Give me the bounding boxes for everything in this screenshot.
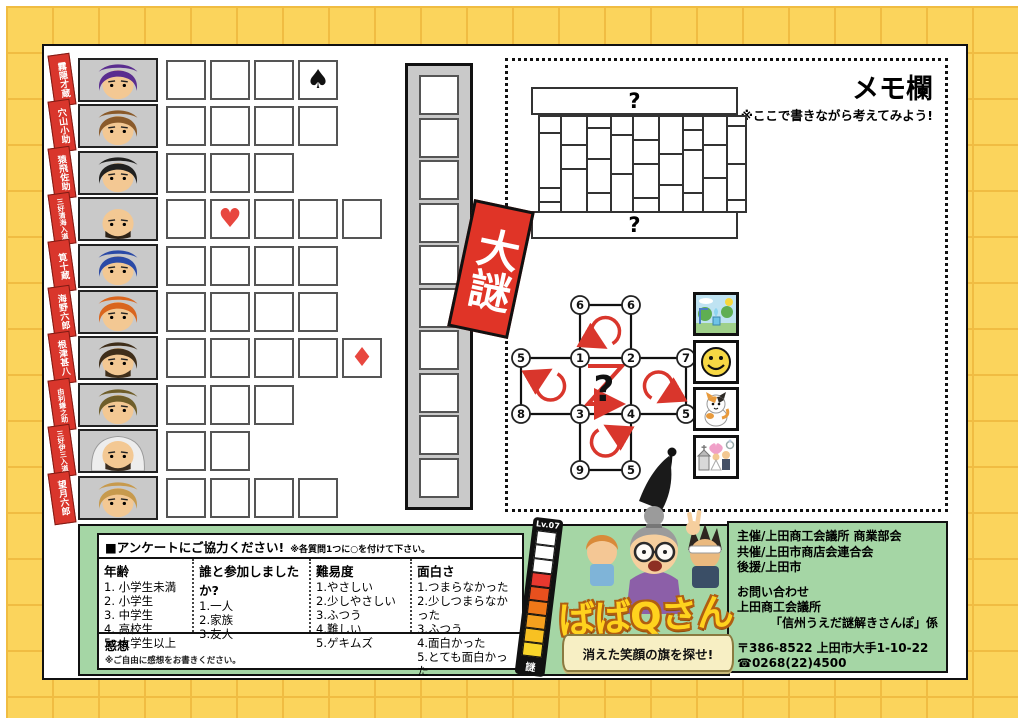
survey-option[interactable]: 3.ふつう	[316, 608, 405, 622]
final-answer-box[interactable]	[419, 458, 459, 498]
brick	[610, 173, 634, 213]
answer-box[interactable]	[254, 106, 294, 146]
answer-box[interactable]	[254, 292, 294, 332]
answer-box[interactable]	[254, 338, 294, 378]
answer-box[interactable]	[210, 338, 250, 378]
character-name-tag: 望月六郎	[47, 470, 76, 525]
brick	[682, 192, 704, 213]
final-answer-box[interactable]	[419, 245, 459, 285]
survey-option[interactable]: 2.家族	[199, 613, 304, 627]
survey-header-note: ※各質問1つに○を付けて下さい。	[290, 545, 430, 555]
puzzle-node-number: 4	[627, 407, 635, 421]
character-name-tag: 穴山小助	[47, 99, 76, 154]
cat-picture-icon	[693, 387, 739, 431]
diamond-mark-icon: ♦	[350, 345, 373, 371]
survey-option[interactable]: 1.一人	[199, 599, 304, 613]
answer-box[interactable]	[166, 106, 206, 146]
answer-box[interactable]	[210, 292, 250, 332]
answer-box-row	[166, 106, 338, 146]
survey-column: 難易度1.やさしい2.少しやさしい3.ふつう4.難しい5.ゲキムズ	[309, 559, 410, 632]
answer-box[interactable]	[210, 153, 250, 193]
survey-column-title: 誰と参加しましたか?	[199, 561, 304, 599]
contact-line: お問い合わせ	[737, 585, 938, 601]
rotation-arrow-icon	[537, 374, 565, 400]
memo-note: ※ここで書きながら考えてみよう!	[741, 105, 933, 124]
rotation-arrow-icon	[645, 372, 673, 398]
answer-box[interactable]	[254, 60, 294, 100]
character-portrait	[78, 104, 158, 148]
park-picture-icon	[693, 292, 739, 336]
answer-box[interactable]	[254, 478, 294, 518]
answer-box[interactable]	[166, 385, 206, 425]
contact-line: ☎0268(22)4500	[737, 656, 938, 672]
brick-bottom-bar: ?	[531, 211, 738, 239]
brick-column	[704, 115, 728, 211]
final-answer-box[interactable]	[419, 75, 459, 115]
brick	[682, 149, 704, 194]
brick	[658, 153, 684, 186]
answer-box[interactable]	[210, 246, 250, 286]
brick	[538, 201, 562, 213]
survey-header-title: ■アンケートにご協力ください!	[105, 540, 284, 555]
final-answer-box[interactable]	[419, 415, 459, 455]
character-portrait	[78, 244, 158, 288]
answer-box[interactable]: ♦	[342, 338, 382, 378]
answer-box[interactable]	[254, 246, 294, 286]
brick	[682, 129, 704, 150]
memo-area[interactable]: メモ欄 ※ここで書きながら考えてみよう! ? ? ?665127834595	[505, 58, 948, 512]
survey-feedback[interactable]: 感想 ※ご自由に感想をお書きください。	[99, 632, 522, 668]
survey-column: 年齢1. 小学生未満2. 小学生3. 中学生4. 高校生5. 大学生以上	[99, 559, 192, 632]
brick	[702, 144, 728, 180]
answer-box-row	[166, 478, 338, 518]
answer-box[interactable]	[210, 385, 250, 425]
answer-box[interactable]	[166, 153, 206, 193]
answer-box[interactable]	[210, 431, 250, 471]
answer-box-row	[166, 385, 294, 425]
brick	[726, 125, 747, 165]
character-portrait	[78, 336, 158, 380]
final-answer-box[interactable]	[419, 373, 459, 413]
answer-box[interactable]	[298, 246, 338, 286]
brick	[702, 115, 728, 146]
brick-column	[684, 115, 704, 211]
brick	[702, 177, 728, 213]
answer-box[interactable]	[298, 292, 338, 332]
answer-box[interactable]: ♠	[298, 60, 338, 100]
event-logo: Lv.07 謎	[522, 508, 740, 680]
survey-column-title: 難易度	[316, 561, 405, 580]
brick	[560, 144, 588, 170]
answer-box[interactable]	[342, 199, 382, 239]
answer-box[interactable]	[166, 338, 206, 378]
brick-column	[660, 115, 684, 211]
answer-box[interactable]	[298, 199, 338, 239]
answer-box-row	[166, 153, 294, 193]
final-answer-box[interactable]	[419, 203, 459, 243]
answer-box[interactable]	[166, 246, 206, 286]
brick	[586, 158, 612, 194]
puzzle-node-number: 2	[627, 351, 635, 365]
memo-title: メモ欄	[852, 67, 933, 106]
logo-tagline: 消えた笑顔の旗を探せ!	[583, 644, 714, 663]
character-portrait	[78, 429, 158, 473]
brick	[632, 115, 660, 141]
brick-column	[588, 115, 612, 211]
answer-box-row: ♠	[166, 60, 338, 100]
character-name-tag: 根津甚八	[47, 331, 76, 386]
survey-option[interactable]: 1.つまらなかった	[417, 580, 517, 594]
puzzle-node-number: 3	[576, 407, 584, 421]
brick-column	[634, 115, 660, 211]
survey-columns: 年齢1. 小学生未満2. 小学生3. 中学生4. 高校生5. 大学生以上誰と参加…	[99, 559, 522, 632]
contact-box: 主催/上田商工会議所 商業部会共催/上田市商店会連合会後援/上田市お問い合わせ上…	[727, 521, 948, 673]
answer-box[interactable]	[298, 478, 338, 518]
survey-column: 面白さ1.つまらなかった2.少しつまらなかった3.ふつう4.面白かった5.とても…	[410, 559, 522, 632]
character-portrait	[78, 476, 158, 520]
brick	[586, 127, 612, 161]
survey-option[interactable]: 1.やさしい	[316, 580, 405, 594]
feedback-title: 感想	[105, 639, 129, 653]
page-background: 霧隠才蔵♠穴山小助猿飛佐助三好清海入道♥筧十蔵海野六郎根津甚八♦由利鎌之助三好伊…	[0, 0, 1024, 724]
brick	[610, 134, 634, 174]
survey-option[interactable]: 2. 小学生	[104, 594, 187, 608]
final-answer-box[interactable]	[419, 118, 459, 158]
answer-box[interactable]	[210, 478, 250, 518]
riddle-worksheet: 霧隠才蔵♠穴山小助猿飛佐助三好清海入道♥筧十蔵海野六郎根津甚八♦由利鎌之助三好伊…	[42, 44, 968, 680]
contact-line: 〒386-8522 上田市大手1-10-22	[737, 641, 938, 657]
gauge-segment	[522, 641, 544, 657]
puzzle-node-number: 6	[576, 298, 584, 312]
character-name-tag: 三好清海入道	[47, 192, 76, 247]
character-portrait	[78, 383, 158, 427]
contact-line: 主催/上田商工会議所 商業部会	[737, 529, 938, 545]
puzzle-node-number: 9	[576, 463, 584, 477]
answer-box[interactable]	[210, 106, 250, 146]
brick	[726, 163, 747, 201]
character-name-tag: 三好伊三入道	[47, 424, 76, 479]
answer-box[interactable]	[298, 106, 338, 146]
character-portrait	[78, 290, 158, 334]
answer-box-row	[166, 292, 338, 332]
puzzle-node-number: 8	[517, 407, 525, 421]
brick-puzzle: ? ?	[531, 87, 738, 239]
final-answer-box[interactable]	[419, 160, 459, 200]
puzzle-node-number: 5	[517, 351, 525, 365]
brick	[658, 115, 684, 155]
answer-box[interactable]	[254, 153, 294, 193]
answer-box[interactable]	[166, 292, 206, 332]
survey-column-title: 年齢	[104, 561, 187, 580]
brick	[586, 192, 612, 213]
survey-option[interactable]: 3. 中学生	[104, 608, 187, 622]
puzzle-node-number: 6	[627, 298, 635, 312]
brick	[610, 115, 634, 136]
brick	[632, 139, 660, 165]
survey-column: 誰と参加しましたか?1.一人2.家族3.友人	[192, 559, 309, 632]
brick-wall	[540, 115, 729, 211]
final-answer-box[interactable]	[419, 330, 459, 370]
answer-box[interactable]	[254, 385, 294, 425]
logo-banner: 消えた笑顔の旗を探せ!	[562, 634, 734, 672]
answer-box-row: ♥	[166, 199, 382, 239]
spade-mark-icon: ♠	[306, 67, 329, 93]
contact-line: 後援/上田市	[737, 560, 938, 576]
brick	[726, 199, 747, 213]
answer-box[interactable]	[166, 431, 206, 471]
puzzle-node-number: 5	[682, 407, 690, 421]
heart-mark-icon: ♥	[218, 206, 241, 232]
survey-box: ■アンケートにご協力ください!※各質問1つに○を付けて下さい。 年齢1. 小学生…	[97, 533, 524, 670]
brick	[560, 115, 588, 146]
puzzle-node-number: 1	[576, 351, 584, 365]
smiley-picture-icon	[693, 340, 739, 384]
brick-column	[540, 115, 562, 211]
center-question-mark: ?	[594, 369, 615, 410]
gauge-riddle-label: 謎	[525, 658, 537, 674]
brick	[632, 197, 660, 213]
rotation-arrow-icon	[592, 430, 620, 456]
answer-box-row: ♦	[166, 338, 382, 378]
brick	[632, 163, 660, 199]
brick-column	[612, 115, 634, 211]
brick	[658, 184, 684, 213]
contact-line: 共催/上田市商店会連合会	[737, 545, 938, 561]
character-portrait	[78, 58, 158, 102]
rotation-arrow-icon	[592, 317, 620, 343]
puzzle-node-number: 7	[682, 351, 690, 365]
contact-line: 上田商工会議所	[737, 600, 938, 616]
contact-line: 「信州うえだ謎解きさんぽ」係	[737, 616, 938, 632]
answer-box[interactable]	[166, 478, 206, 518]
answer-box-row	[166, 246, 338, 286]
answer-box[interactable]: ♥	[210, 199, 250, 239]
brick-column	[562, 115, 588, 211]
answer-box[interactable]	[298, 338, 338, 378]
answer-box-row	[166, 431, 250, 471]
answer-box[interactable]	[166, 60, 206, 100]
brick-column	[728, 115, 747, 211]
survey-option[interactable]: 2.少しつまらなかった	[417, 594, 517, 622]
survey-option[interactable]: 2.少しやさしい	[316, 594, 405, 608]
brick	[538, 132, 562, 189]
brick-top-bar: ?	[531, 87, 738, 115]
answer-box[interactable]	[210, 60, 250, 100]
character-portrait	[78, 151, 158, 195]
survey-header: ■アンケートにご協力ください!※各質問1つに○を付けて下さい。	[99, 535, 522, 559]
character-portrait	[78, 197, 158, 241]
brick	[560, 168, 588, 213]
feedback-note: ※ご自由に感想をお書きください。	[105, 654, 516, 666]
survey-column-title: 面白さ	[417, 561, 517, 580]
survey-option[interactable]: 1. 小学生未満	[104, 580, 187, 594]
answer-box[interactable]	[166, 199, 206, 239]
answer-box[interactable]	[254, 199, 294, 239]
